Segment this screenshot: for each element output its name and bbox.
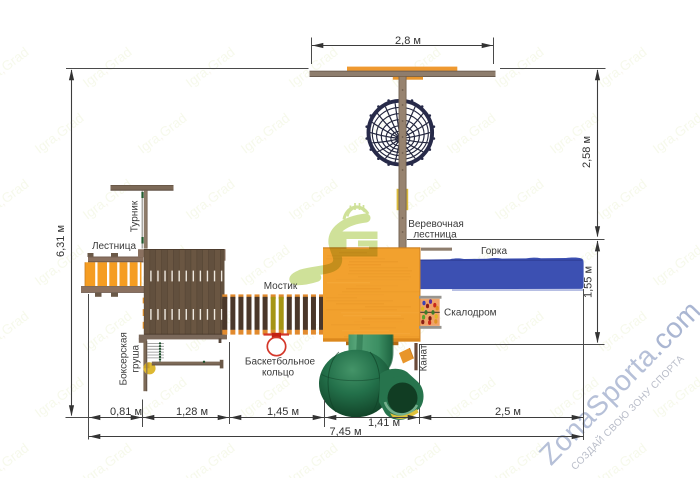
svg-text:0,81 м: 0,81 м xyxy=(110,406,142,418)
svg-text:Турник: Турник xyxy=(129,200,140,232)
svg-text:2,5 м: 2,5 м xyxy=(495,406,521,418)
svg-text:7,45 м: 7,45 м xyxy=(329,426,361,438)
svg-text:6,31 м: 6,31 м xyxy=(55,225,67,257)
svg-text:1,55 м: 1,55 м xyxy=(583,266,595,298)
svg-text:1,45 м: 1,45 м xyxy=(267,406,299,418)
svg-text:Мостик: Мостик xyxy=(264,281,298,292)
svg-text:2,8 м: 2,8 м xyxy=(395,35,421,47)
svg-text:Веревочная: Веревочная xyxy=(408,219,464,230)
svg-text:Канат: Канат xyxy=(419,344,430,371)
svg-text:Горка: Горка xyxy=(481,246,507,257)
svg-text:Лестница: Лестница xyxy=(92,241,137,252)
svg-text:лестница: лестница xyxy=(413,230,457,241)
svg-text:1,41 м: 1,41 м xyxy=(368,417,400,429)
svg-text:Скалодром: Скалодром xyxy=(444,308,497,319)
svg-text:Боксерская: Боксерская xyxy=(119,332,130,385)
svg-text:кольцо: кольцо xyxy=(262,368,294,379)
svg-text:Баскетбольное: Баскетбольное xyxy=(245,355,316,367)
svg-text:2,58 м: 2,58 м xyxy=(581,136,593,168)
svg-text:груша: груша xyxy=(131,345,142,373)
svg-text:1,28 м: 1,28 м xyxy=(176,406,208,418)
